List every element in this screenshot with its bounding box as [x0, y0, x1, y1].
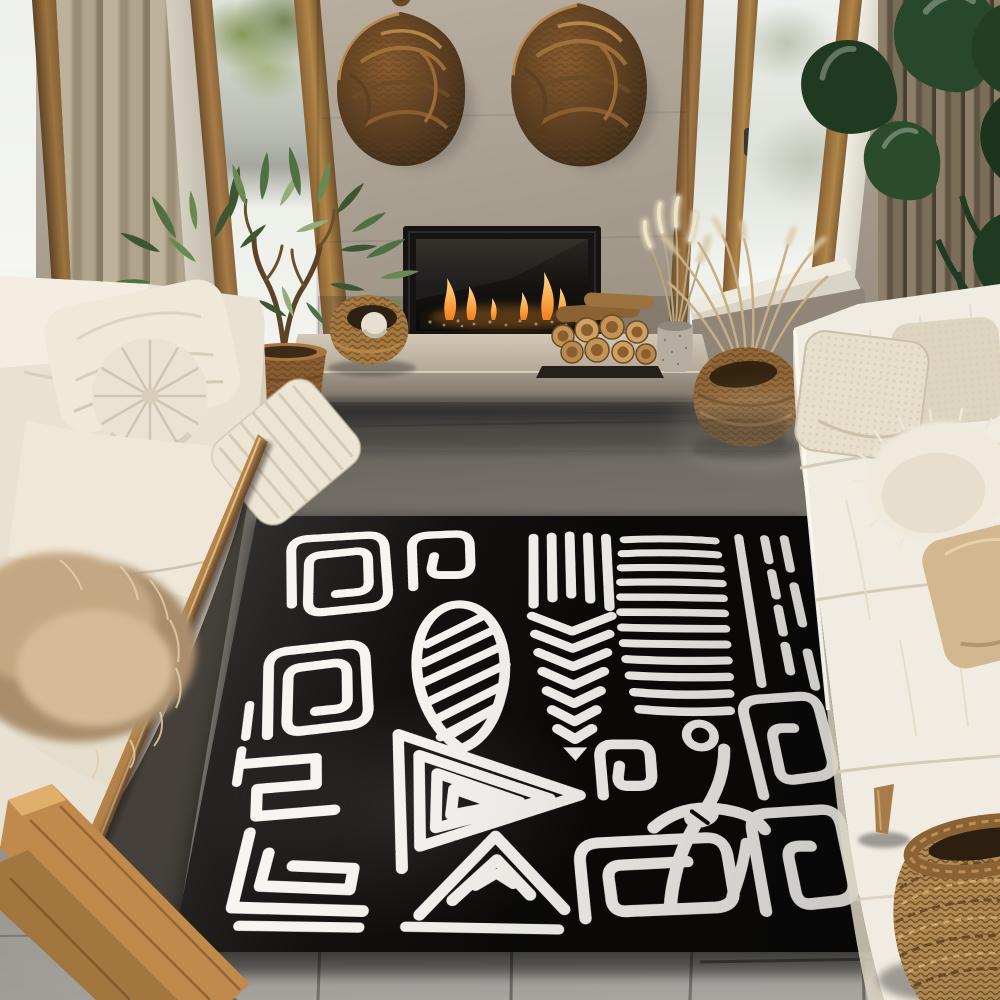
motif-g-spiral: [599, 744, 653, 795]
hearth: [282, 334, 718, 422]
ember-pebbles: [428, 320, 577, 328]
motif-ribs: [617, 539, 739, 712]
living-room-photo: [0, 0, 1000, 1000]
boucle-pillow-1: [793, 329, 931, 463]
window-handle: [744, 128, 754, 156]
tree-foliage: [110, 146, 419, 333]
rug-pattern: [172, 516, 892, 952]
tan-pillow: [918, 519, 1000, 673]
left-curtain: [56, 0, 195, 446]
rug-lighting-overlay: [172, 516, 892, 952]
motif-wide-spiral: [579, 838, 736, 919]
right-window-mullion: [718, 0, 762, 386]
motif-ring: [685, 724, 715, 748]
left-window-frame: [32, 0, 93, 446]
motif-bottom-triangle: [420, 836, 565, 915]
monstera-plant: [785, 0, 1000, 360]
right-window-glass-right: [733, 0, 846, 356]
foreground-scene: [0, 0, 1000, 1000]
wall-shading: [318, 0, 690, 400]
flames: [444, 272, 566, 320]
right-window-frame-left: [665, 0, 708, 402]
tile-floor: [0, 388, 1000, 1000]
motif-square-spiral-2: [257, 644, 375, 735]
left-window-frame-right: [294, 0, 357, 420]
sofa-wood-base: [0, 784, 250, 1000]
right-wall-trim: [825, 0, 884, 348]
motif-square-spiral-1: [281, 535, 394, 612]
photo-vignette: [0, 0, 1000, 1000]
hearth-basket: [328, 295, 416, 376]
right-window-glass-left: [684, 0, 744, 382]
fireplace: [403, 226, 601, 344]
right-sofa: [793, 284, 1000, 1000]
left-window-glass: [212, 0, 330, 346]
motif-anchor: [648, 749, 775, 906]
fireplace-wall: [0, 0, 1000, 446]
motif-nested-square-2: [749, 810, 858, 911]
left-sofa: [0, 274, 368, 1000]
motif-leaf-outline: [410, 604, 506, 748]
fur-throw: [0, 552, 196, 778]
fluffy-pillow: [845, 397, 1000, 566]
boucle-pillow-2: [890, 315, 1000, 428]
sofa-leg: [874, 784, 894, 834]
mola-rug: [172, 516, 892, 952]
motif-hook-spiral: [409, 534, 472, 587]
potted-tree: [110, 146, 419, 455]
motif-comb: [534, 535, 610, 607]
background-scene: [0, 0, 1000, 1000]
motif-chevron-fern: [532, 616, 618, 739]
motif-triangle-spiral: [387, 734, 582, 869]
motif-nested-square-1: [741, 696, 838, 795]
floor-basket: [878, 812, 1000, 1000]
ruffled-pillow: [92, 338, 208, 454]
left-wall-trim: [166, 0, 225, 440]
motif-border-dashes: [739, 537, 816, 686]
grass-basket: [664, 219, 828, 460]
left-window-frame-inner: [190, 0, 254, 432]
motif-nested-u: [231, 833, 370, 911]
wall-baskets: [337, 0, 656, 168]
firewood: [536, 292, 664, 378]
right-window-frame-right: [803, 0, 866, 352]
right-window-sill: [688, 258, 872, 398]
motif-meander: [233, 758, 341, 816]
knit-pillow: [204, 371, 369, 533]
floor-details: [0, 390, 1000, 1000]
right-curtain: [878, 0, 1000, 354]
pampas-vase: [645, 198, 708, 372]
cream-pillow: [39, 274, 246, 437]
motif-leaf-stripes: [419, 617, 507, 737]
far-left-window-glass: [0, 0, 36, 436]
